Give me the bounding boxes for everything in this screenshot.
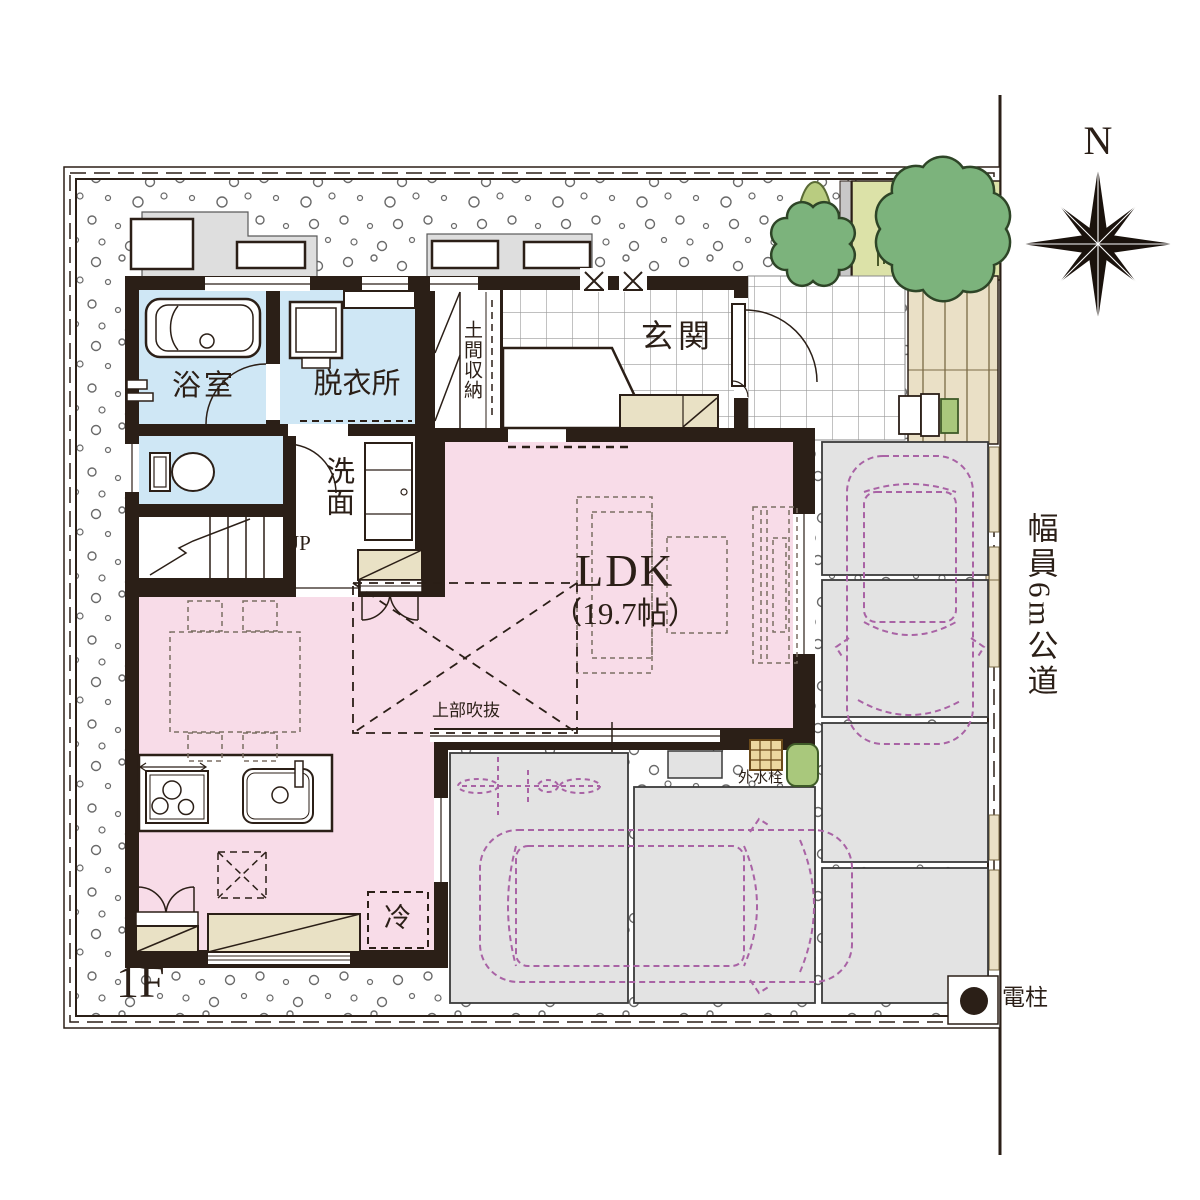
floor-label: 1F [116,958,165,1006]
utility-pole-icon [948,976,998,1024]
washing-machine-icon [290,302,342,368]
room-label-doma: 土間収納 [461,320,481,400]
compass-rose [1022,168,1174,320]
stairs-up-label: UP [284,532,311,554]
porch-tiles [748,276,905,440]
outdoor-faucet-label: 外水栓 [738,771,783,787]
room-label-ldk-size: （19.7帖） [505,598,745,631]
room-label-genkan: 玄関 [628,320,728,354]
utility-pole-label: 電柱 [1002,986,1048,1010]
room-label-ldk: LDK [535,548,715,595]
compass-north-label: N [1080,120,1116,162]
void-above-label: 上部吹抜 [432,702,500,720]
road-label: 幅員6m公道 [1023,512,1056,700]
room-label-washroom: 洗面 [322,456,352,518]
kitchen-sink-icon [243,761,313,823]
washbasin-icon [365,443,412,540]
bathtub-icon [146,299,260,357]
room-label-bath: 浴室 [158,371,250,401]
floor-plan: N 幅員6m公道 浴室 脱衣所 洗面 UP 玄関 土間収納 LDK （19.7帖… [0,0,1200,1200]
large-tree [876,157,1010,301]
outdoor-faucet-icon [750,740,782,770]
porch-bench [899,394,958,436]
shoe-cabinet [620,395,718,428]
room-label-dressing: 脱衣所 [298,369,416,399]
planter-green [787,744,818,786]
kitchen-counter [139,755,332,831]
fridge-label: 冷 [384,904,411,932]
toilet-icon [150,453,214,491]
stove-icon [146,771,208,823]
